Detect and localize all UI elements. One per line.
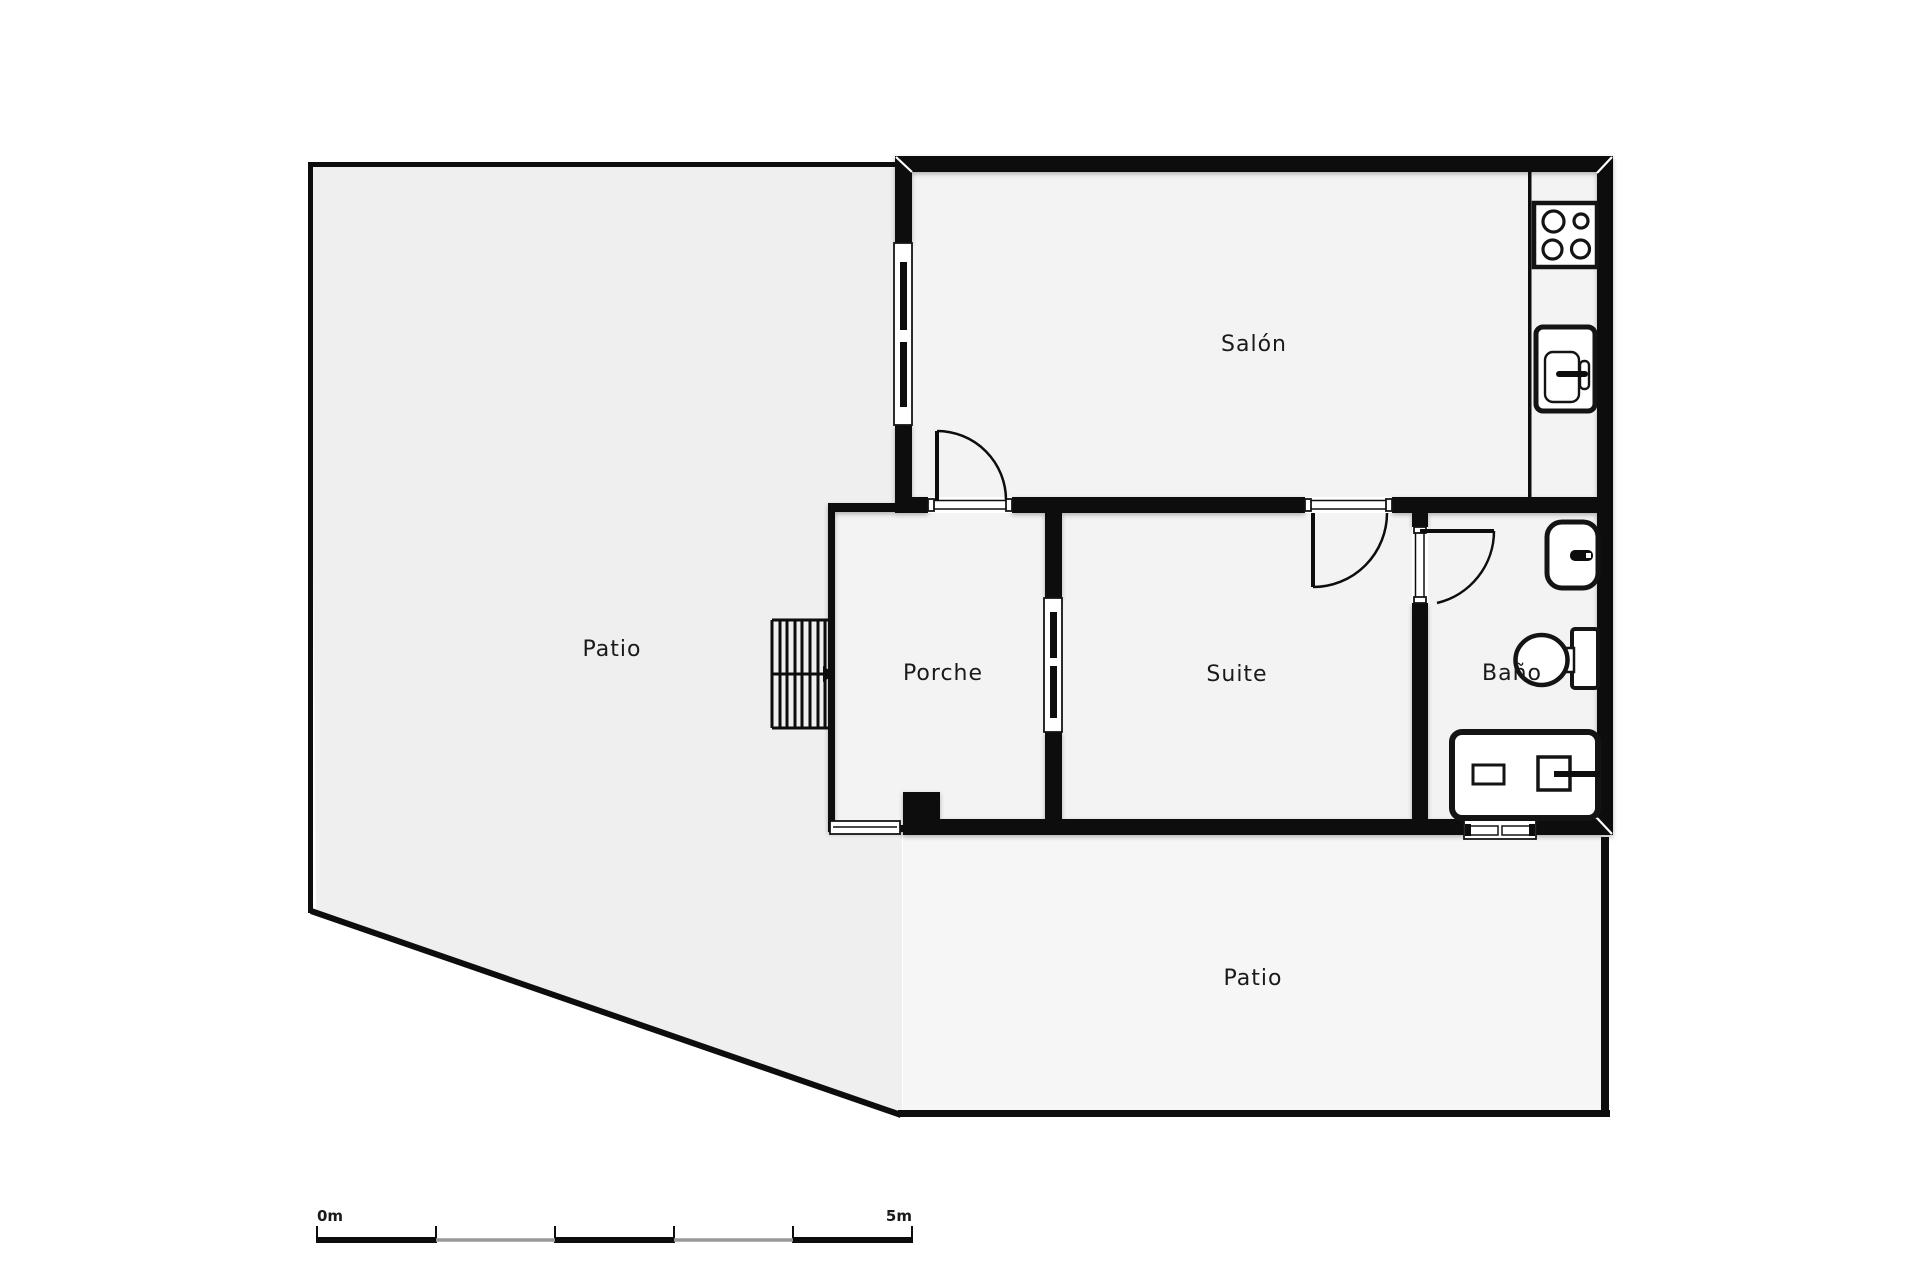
wall-salon-bottom-b [1012, 497, 1305, 513]
wall-porche-left [828, 503, 835, 832]
patio-left-top-edge [308, 162, 900, 167]
wall-porche-suite-upper [1045, 513, 1062, 598]
room-label-suite: Suite [1206, 662, 1267, 687]
wall-salon-bottom-a [895, 497, 928, 513]
wall-suite-bano-lower [1412, 603, 1428, 835]
scale-segments [317, 1237, 912, 1243]
stove-4-burner-icon [1534, 203, 1597, 267]
floor-plan-canvas: Salón Patio Porche Suite Baño Patio 0m 5… [0, 0, 1920, 1280]
kitchen-counter [1528, 172, 1532, 497]
wall-salon-bottom-c [1392, 497, 1613, 513]
wall-bottom-a [903, 819, 1465, 835]
floor-plan-page: Salón Patio Porche Suite Baño Patio 0m 5… [0, 0, 1920, 1280]
scale-end-label: 5m [886, 1207, 912, 1225]
room-label-salon: Salón [1221, 332, 1287, 357]
room-label-patio-left: Patio [583, 637, 642, 662]
scale-bar: 0m 5m [317, 1207, 912, 1243]
wall-top [895, 156, 1613, 172]
washbasin-icon [1547, 522, 1598, 588]
patio-bottom-bottom-edge [898, 1110, 1610, 1117]
window-salon-left [894, 243, 912, 425]
window-porche-south [830, 821, 900, 834]
room-label-patio-bottom: Patio [1224, 966, 1283, 991]
patio-bottom-right-edge [1601, 837, 1609, 1117]
staircase-icon [772, 620, 835, 728]
patio-left-left-edge [308, 162, 313, 913]
wall-pier-bottom-left [903, 792, 940, 835]
scale-start-label: 0m [317, 1207, 343, 1225]
room-label-bano: Baño [1482, 661, 1542, 686]
kitchen-sink-icon [1536, 327, 1595, 411]
wall-suite-bano-upper [1412, 513, 1428, 527]
window-porche-suite [1044, 598, 1062, 732]
window-bano-south [1464, 820, 1536, 839]
wall-porche-top [835, 503, 895, 512]
room-label-porche: Porche [903, 661, 983, 686]
vanity-unit-icon [1452, 732, 1600, 818]
wall-right [1597, 156, 1613, 835]
vanity-pipe [1554, 771, 1600, 777]
